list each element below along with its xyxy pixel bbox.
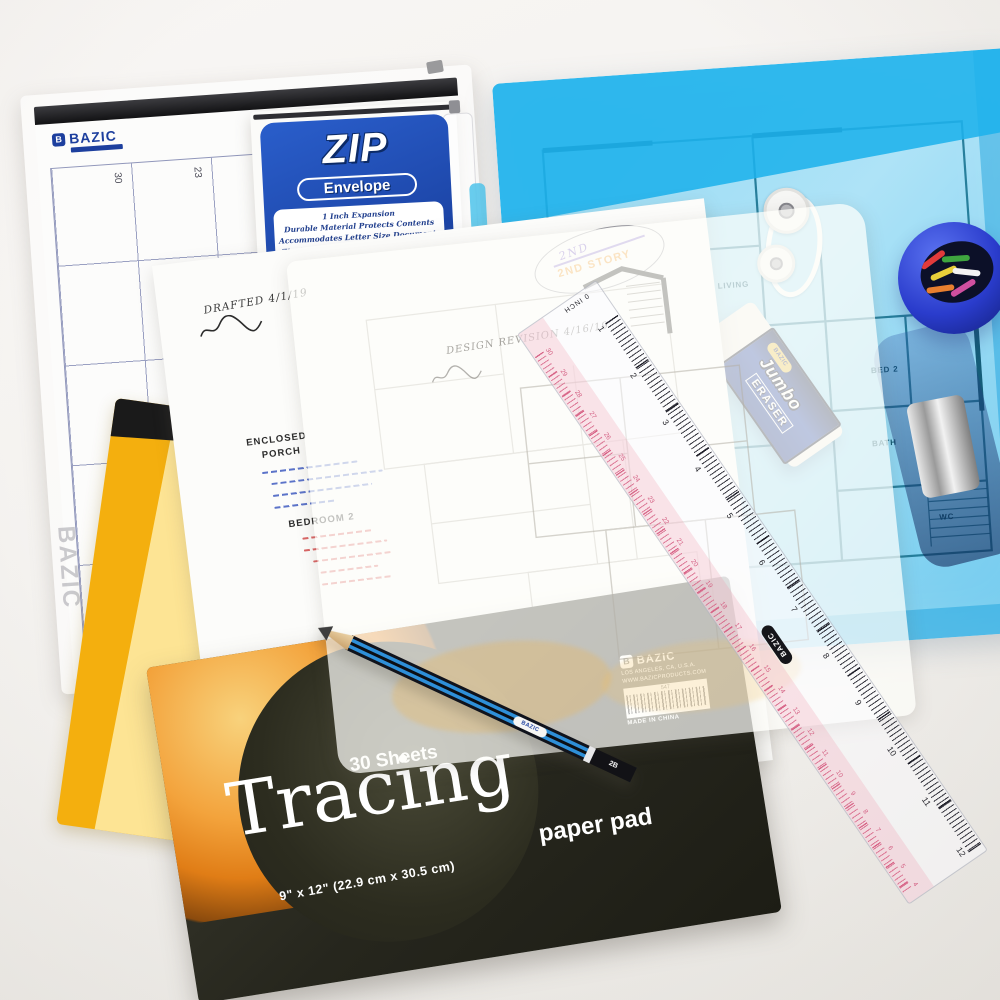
- ruler-number: 5: [725, 511, 736, 521]
- ruler-number: 3: [660, 417, 671, 427]
- zip-subtitle: Envelope: [297, 172, 418, 201]
- paper-clip: [952, 268, 980, 277]
- ruler-number: 6: [886, 845, 894, 852]
- bazic-logo-icon: B: [52, 132, 66, 146]
- faint-signature: [428, 362, 486, 390]
- ruler-number: 4: [692, 464, 703, 474]
- ruler-number: 7: [789, 604, 800, 614]
- ruler-number: 7: [874, 827, 882, 834]
- pad-subtitle: paper pad: [537, 803, 655, 849]
- ruler-number: 1: [596, 324, 607, 334]
- day-number: 30: [112, 172, 124, 184]
- zip-title: ZIP: [260, 122, 450, 177]
- calendar-brand: B BAZIC: [52, 127, 118, 147]
- photo-scene: B BAZIC 30 23 16 9 24 17 10 25 26 29: [0, 0, 1000, 1000]
- paper-clip-cup: [898, 222, 1000, 334]
- ruler-number: 2: [628, 371, 639, 381]
- ruler-number: 8: [861, 808, 869, 815]
- metallic-clip-stack: [906, 394, 981, 499]
- binder-clip: [426, 60, 444, 75]
- day-number: 23: [191, 166, 203, 178]
- note-heading: PORCH: [261, 445, 301, 461]
- bazic-logo-text: BAZIC: [69, 127, 118, 146]
- ruler-number: 5: [899, 863, 907, 870]
- zipper-slider: [449, 100, 461, 114]
- cup-opening: [913, 232, 1000, 312]
- paper-clip: [942, 255, 970, 263]
- ruler-number: 9: [853, 698, 864, 708]
- ruler-number: 8: [821, 651, 832, 661]
- calendar-watermark: BAZIC: [51, 525, 85, 610]
- ruler-number: 9: [849, 790, 857, 797]
- ruler-number: 6: [757, 558, 768, 568]
